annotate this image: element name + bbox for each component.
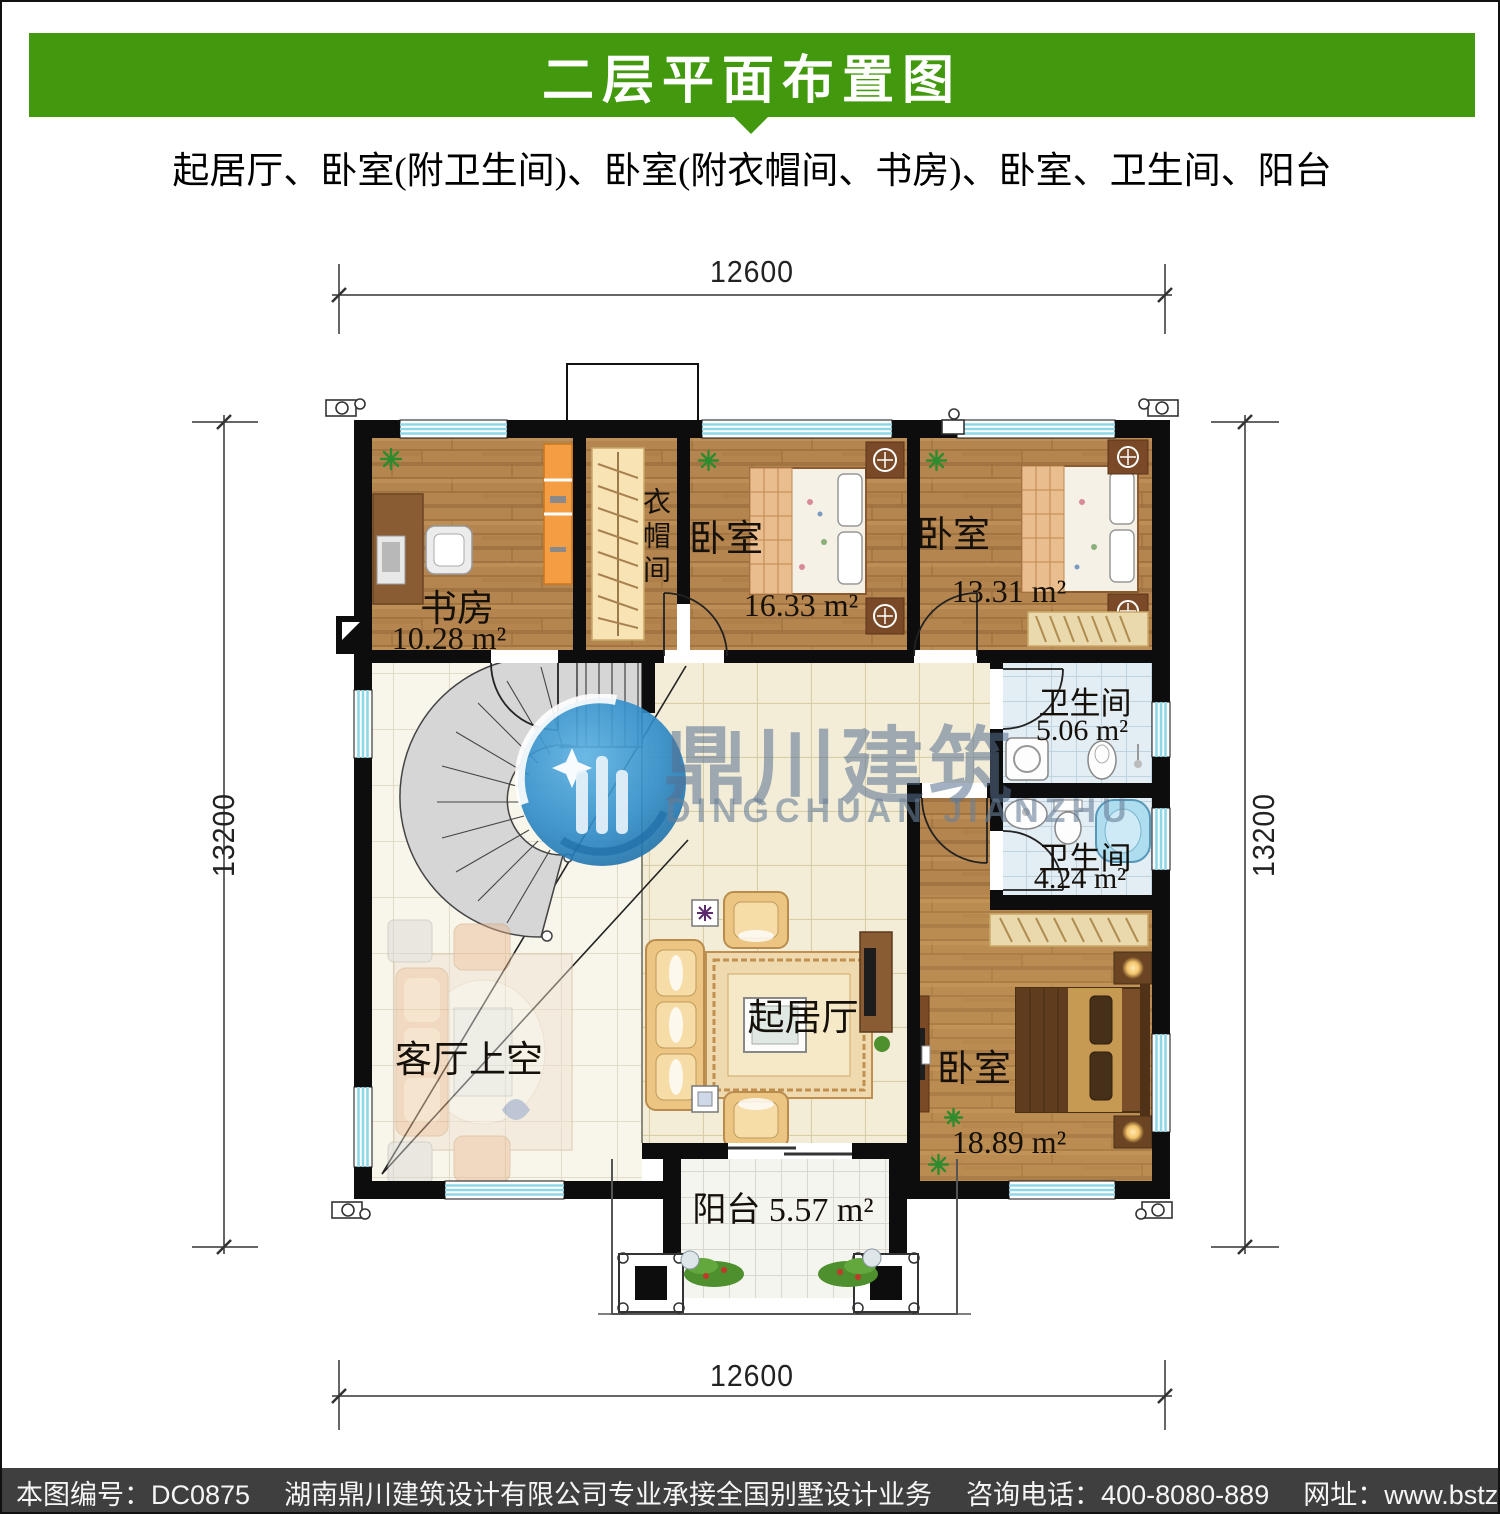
dimension-right: 13200	[1246, 761, 1282, 908]
dimension-bottom: 12600	[660, 1358, 844, 1394]
balcony-area: 5.57 m²	[769, 1192, 874, 1229]
room-area-bedroom-right: 13.31 m²	[909, 573, 1109, 610]
room-label-void: 客厅上空	[349, 1029, 589, 1083]
floor-plan-svg	[2, 2, 1500, 1514]
floor-plan: 鼎川建筑 DINGCHUAN JIANZHU 书房 10.28 m² 衣帽间 卧…	[2, 2, 1500, 1514]
roof-bumpout	[567, 364, 698, 422]
room-label-living: 起居厅	[703, 987, 903, 1041]
footer-plan-code: 本图编号：DC0875	[16, 1473, 250, 1512]
page: 二层平面布置图 起居厅、卧室(附卫生间)、卧室(附衣帽间、书房)、卧室、卫生间、…	[0, 0, 1500, 1514]
room-area-bedroom-mid: 16.33 m²	[701, 587, 901, 624]
room-area-bath-lower: 4.24 m²	[1010, 862, 1150, 896]
room-label-bedroom-master: 卧室	[874, 1038, 1074, 1092]
room-area-bath-upper: 5.06 m²	[1012, 714, 1152, 748]
footer-website: 网址：www.bstzcs.com	[1303, 1473, 1500, 1512]
room-area-study: 10.28 m²	[349, 620, 549, 657]
footer-company: 湖南鼎川建筑设计有限公司专业承接全国别墅设计业务	[284, 1473, 932, 1512]
room-label-bedroom-right: 卧室	[853, 504, 1053, 558]
room-label-balcony: 阳台 5.57 m²	[653, 1182, 913, 1231]
room-label-bedroom-mid: 卧室	[626, 508, 826, 562]
footer-phone: 咨询电话：400-8080-889	[966, 1473, 1269, 1512]
footer-bar: 本图编号：DC0875 湖南鼎川建筑设计有限公司专业承接全国别墅设计业务 咨询电…	[2, 1468, 1500, 1514]
balcony-name: 阳台	[692, 1192, 760, 1229]
dimension-left: 13200	[206, 761, 242, 908]
dimension-top: 12600	[660, 254, 844, 290]
room-area-bedroom-master: 18.89 m²	[909, 1124, 1109, 1161]
